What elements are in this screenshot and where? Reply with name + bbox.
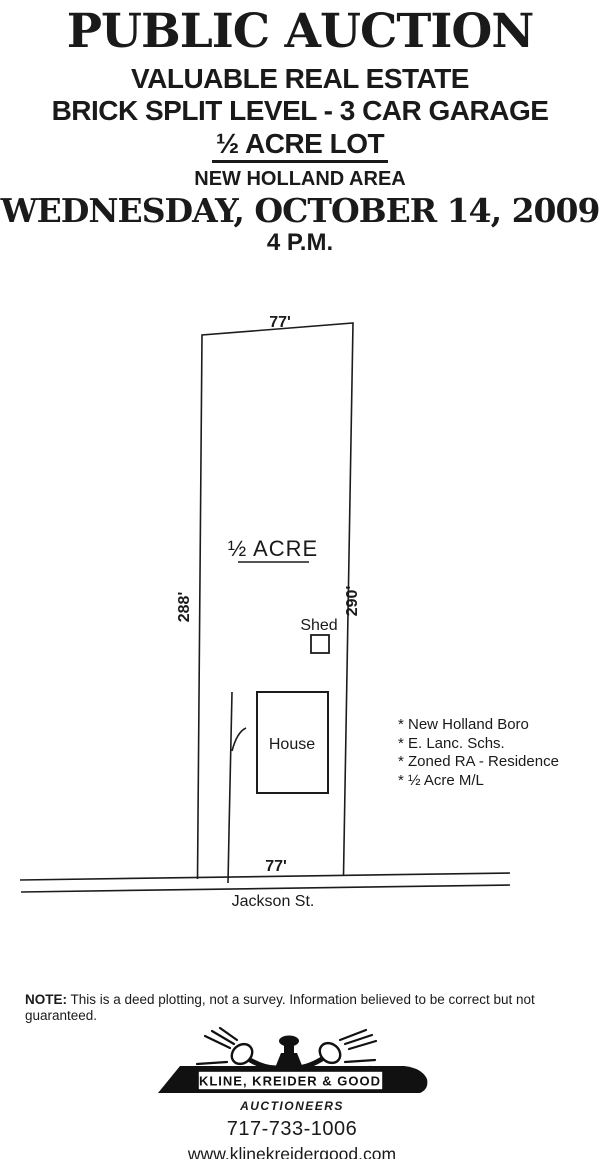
- website-link: www.klinekreidergood.com: [0, 1144, 584, 1159]
- feature-item-zoning: * Zoned RA - Residence: [398, 753, 559, 772]
- auction-flyer: PUBLIC AUCTION VALUABLE REAL ESTATE BRIC…: [0, 0, 600, 1159]
- lot-left-dimension: 288': [176, 592, 193, 623]
- driveway-line: [228, 692, 232, 883]
- street-line-bottom: [21, 885, 510, 892]
- house-label: House: [269, 736, 315, 753]
- feature-item-schools: * E. Lanc. Schs.: [398, 735, 559, 754]
- auctioneer-logo: KLINE, KREIDER & GOOD: [142, 1026, 442, 1098]
- shed-label: Shed: [300, 617, 337, 634]
- footer-contact: AUCTIONEERS 717-733-1006 www.klinekreide…: [0, 1099, 584, 1159]
- note-text: This is a deed plotting, not a survey. I…: [25, 992, 535, 1023]
- note-label: NOTE:: [25, 992, 67, 1007]
- feature-item-acreage: * ½ Acre M/L: [398, 772, 559, 791]
- shed-outline: [311, 635, 329, 653]
- driveway-curve: [232, 728, 246, 751]
- property-features-list: * New Holland Boro * E. Lanc. Schs. * Zo…: [398, 716, 559, 790]
- lot-area-label: ½ ACRE: [228, 536, 318, 561]
- lot-boundary-line: [198, 323, 354, 879]
- company-name: KLINE, KREIDER & GOOD: [199, 1074, 381, 1089]
- disclaimer-note: NOTE: This is a deed plotting, not a sur…: [25, 992, 585, 1024]
- auctioneers-label: AUCTIONEERS: [0, 1099, 584, 1113]
- phone-number: 717-733-1006: [0, 1118, 584, 1141]
- deed-plot-diagram: 77' ½ ACRE 288' 290' Shed House 77' Jack…: [0, 0, 600, 1159]
- lot-right-dimension: 290': [344, 586, 361, 617]
- lot-top-dimension: 77': [269, 314, 291, 331]
- lot-bottom-dimension: 77': [265, 858, 287, 875]
- crossed-gavels-icon: [197, 1028, 376, 1070]
- street-name-label: Jackson St.: [232, 893, 315, 910]
- feature-item-boro: * New Holland Boro: [398, 716, 559, 735]
